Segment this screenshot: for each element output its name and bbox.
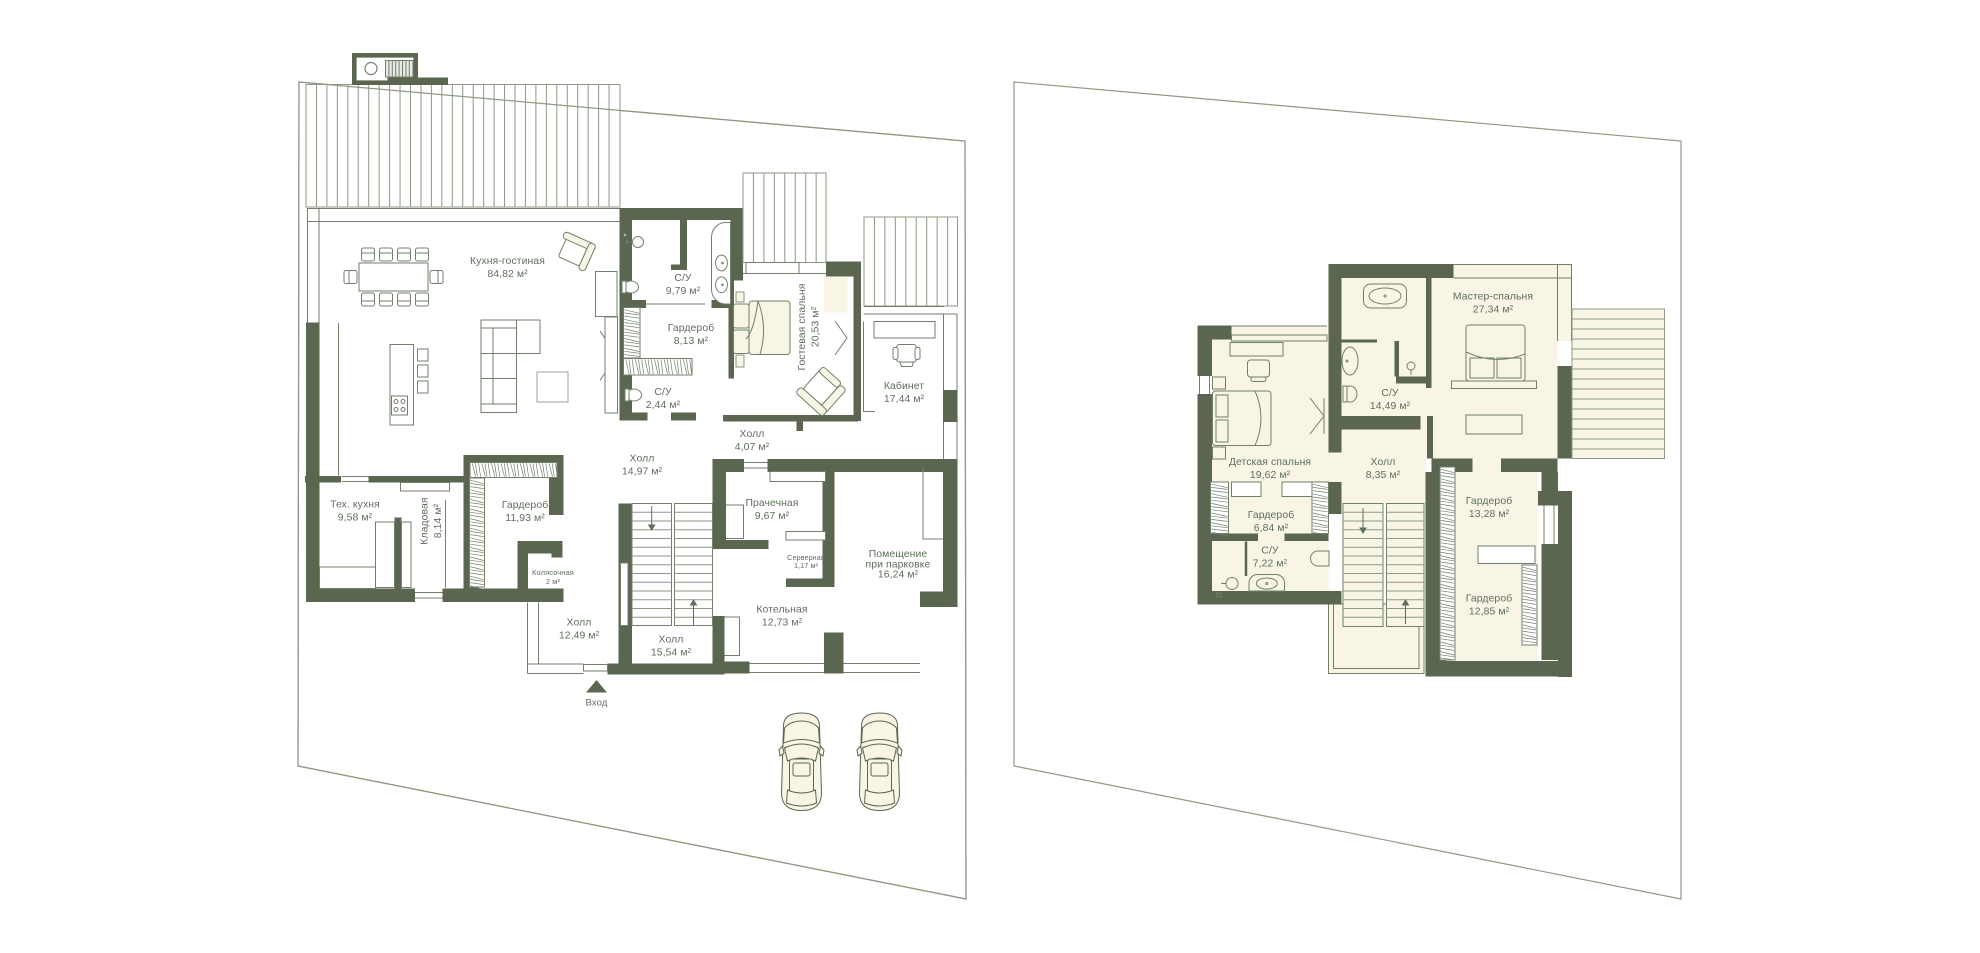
svg-text:Гостевая спальня: Гостевая спальня: [797, 283, 808, 370]
svg-text:8,14 м²: 8,14 м²: [433, 503, 444, 538]
svg-text:20,53 м²: 20,53 м²: [811, 306, 822, 347]
svg-text:Кладовая: Кладовая: [420, 497, 431, 544]
svg-text:Вход: Вход: [586, 698, 608, 709]
